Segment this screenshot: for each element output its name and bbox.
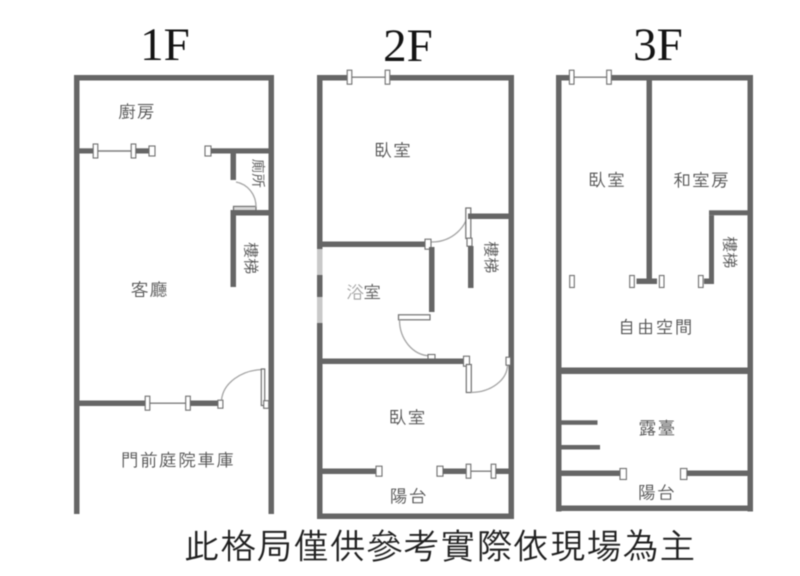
svg-text:2F: 2F: [383, 20, 433, 72]
svg-text:3F: 3F: [633, 19, 683, 71]
svg-text:1F: 1F: [140, 19, 190, 71]
